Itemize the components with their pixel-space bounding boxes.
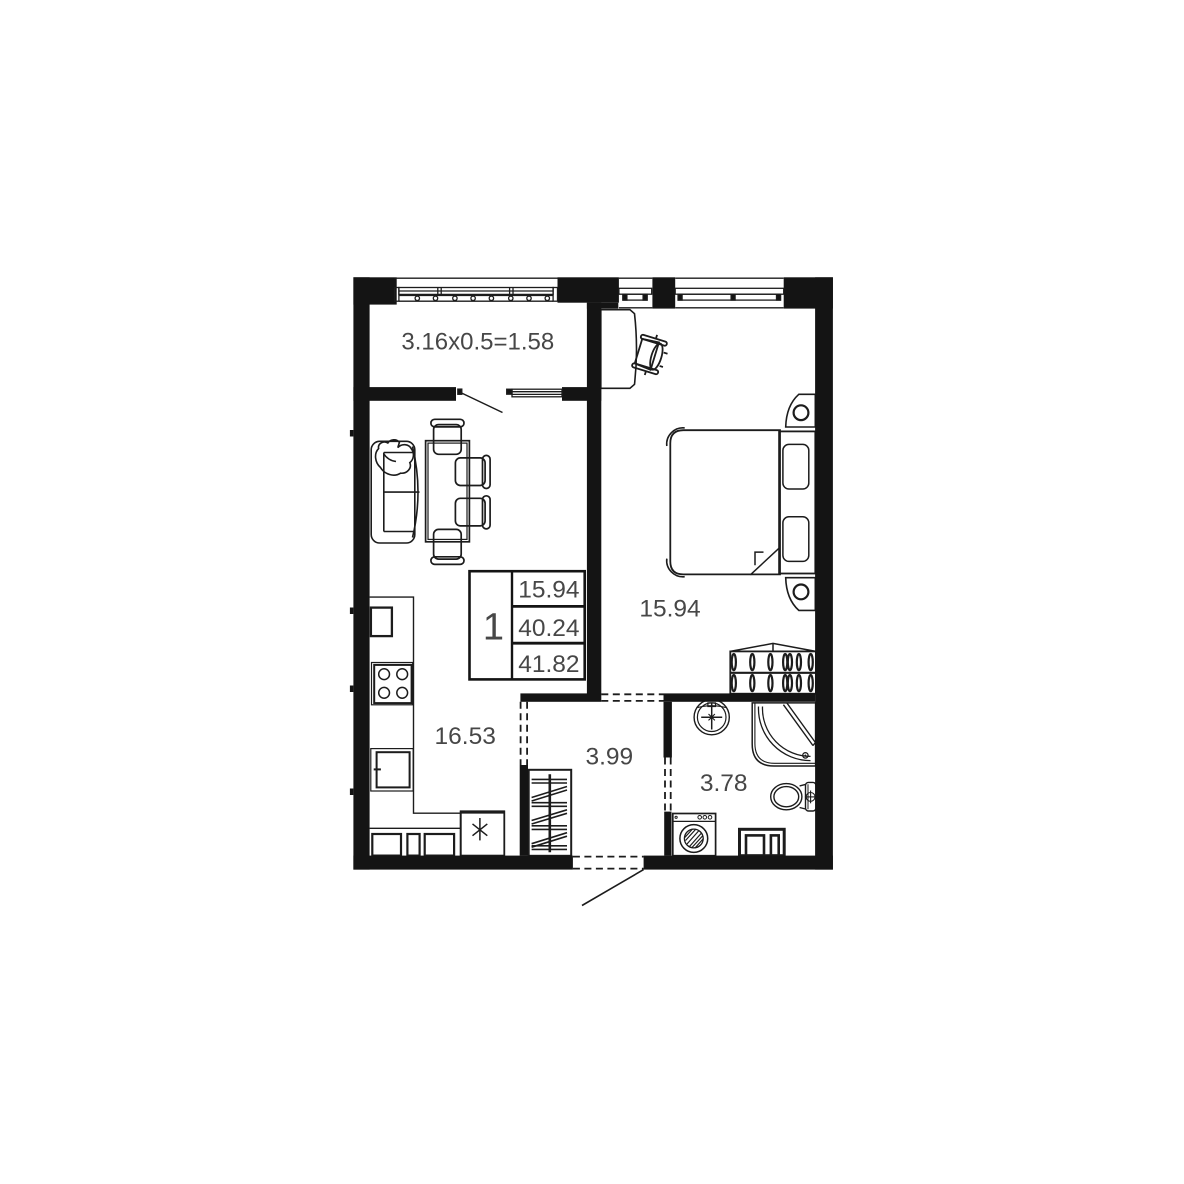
svg-text:15.94: 15.94: [639, 595, 700, 622]
svg-text:40.24: 40.24: [518, 615, 579, 642]
svg-text:16.53: 16.53: [435, 723, 496, 750]
svg-text:3.78: 3.78: [700, 770, 748, 797]
svg-text:41.82: 41.82: [518, 651, 579, 678]
svg-text:3.99: 3.99: [585, 744, 633, 771]
svg-text:3.16х0.5=1.58: 3.16х0.5=1.58: [401, 328, 554, 355]
svg-text:1: 1: [483, 607, 504, 649]
svg-text:15.94: 15.94: [518, 577, 579, 604]
